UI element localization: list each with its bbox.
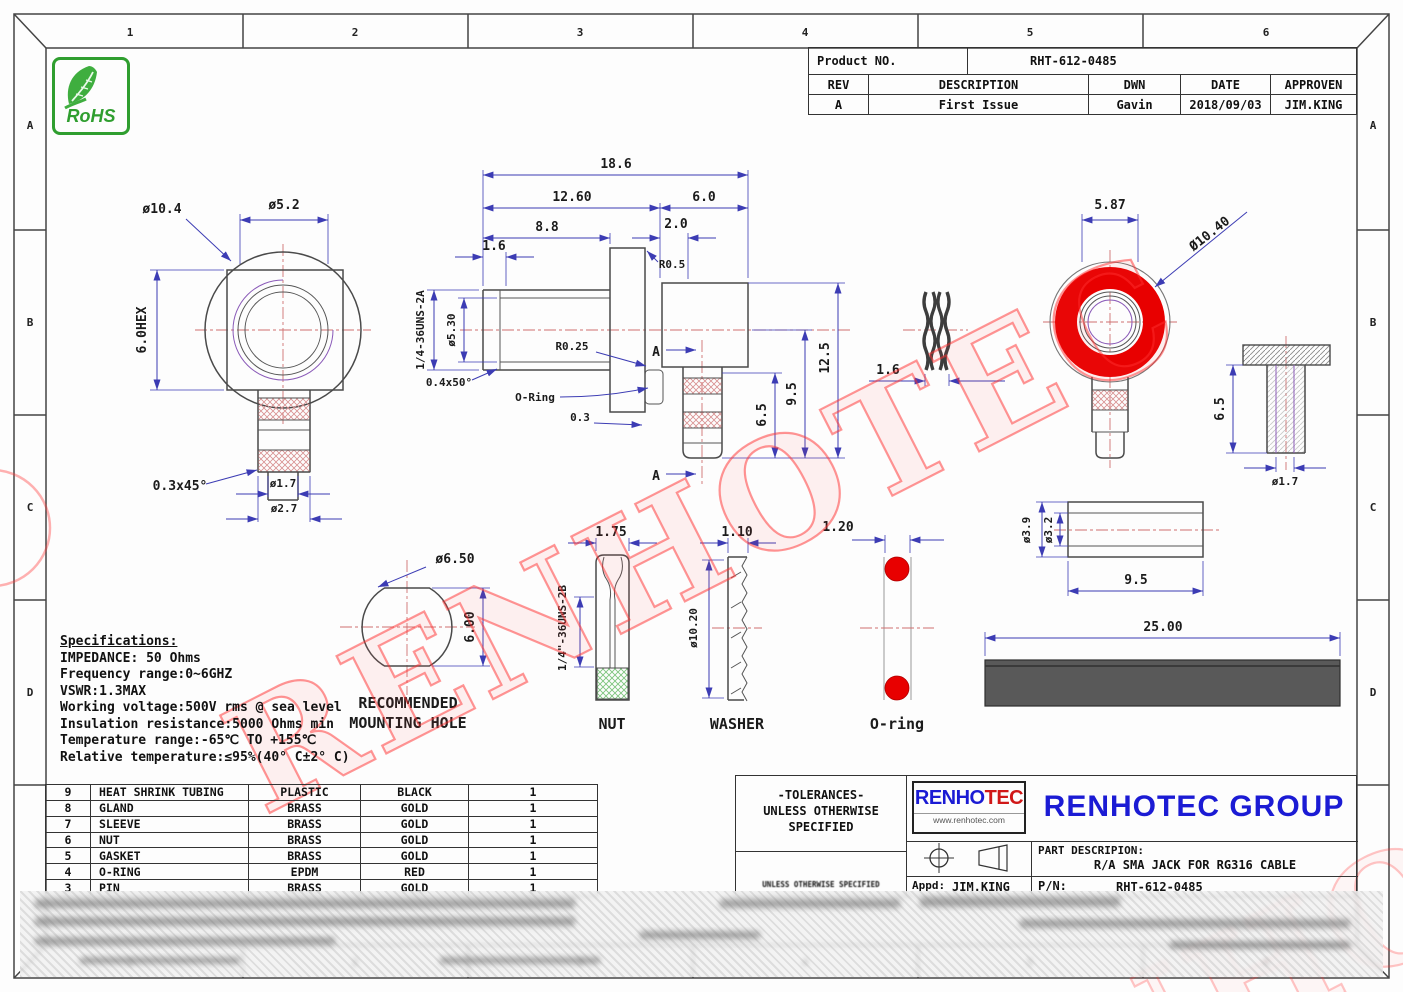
- zone-row: B: [1370, 316, 1377, 329]
- part-qty: 1: [469, 801, 597, 816]
- rev-header: REV: [809, 75, 869, 94]
- zone-col: 1: [127, 26, 134, 39]
- part-qty: 1: [469, 785, 597, 800]
- censored-bottom-strip: [20, 891, 1383, 977]
- revision-product-row: Product NO. RHT-612-0485: [809, 48, 1356, 75]
- dim-label: ø5.2: [268, 198, 299, 213]
- censored-content: [640, 931, 760, 939]
- censored-content: [35, 917, 575, 926]
- dim-label: 0.3x45°: [153, 479, 208, 494]
- logo-text-blue: RENHO: [915, 787, 985, 809]
- zone-row: C: [1370, 501, 1377, 514]
- zone-col: 2: [352, 26, 359, 39]
- part-name: HEAT SHRINK TUBING: [91, 785, 249, 800]
- part-name: GLAND: [91, 801, 249, 816]
- sleeve-view: ø3.9 ø3.2 9.5: [1020, 502, 1222, 596]
- spec-line: Frequency range:0~6GHZ: [60, 667, 390, 684]
- censored-content: [1020, 919, 1350, 928]
- logo-text-red: TEC: [985, 787, 1024, 809]
- dim-label: ø1.7: [1272, 475, 1299, 488]
- part-name: NUT: [91, 833, 249, 848]
- rev-header: DATE: [1181, 75, 1271, 94]
- rev-cell: A: [809, 95, 869, 114]
- spec-line: VSWR:1.3MAX: [60, 684, 390, 701]
- zone-col: 6: [1263, 26, 1270, 39]
- zone-col: 3: [577, 26, 584, 39]
- dim-label: ø5.30: [445, 313, 458, 346]
- oring-section: [885, 676, 909, 700]
- spec-line: Working voltage:500V rms @ sea level: [60, 700, 390, 717]
- view-caption: NUT: [598, 715, 625, 733]
- part-qty: 1: [469, 864, 597, 879]
- revision-header-row: REV DESCRIPTION DWN DATE APPROVEN: [809, 75, 1356, 95]
- part-name: O-RING: [91, 864, 249, 879]
- dim-label: 6.0HEX: [135, 306, 150, 353]
- product-no-label: Product NO.: [809, 48, 968, 74]
- spec-line: Insulation resistance:5000 Ohms min: [60, 717, 390, 734]
- dim-label: 9.5: [1124, 573, 1147, 588]
- section-mark: A: [652, 345, 660, 360]
- censored-content: [35, 899, 575, 908]
- part-material: EPDM: [249, 864, 361, 879]
- zone-row: A: [27, 119, 34, 132]
- logo-url: www.renhotec.com: [914, 813, 1024, 826]
- table-row: 6NUTBRASSGOLD1: [46, 833, 597, 849]
- part-material: BRASS: [249, 801, 361, 816]
- front-view: ø5.2 ø10.4 6.0HEX 0.3x45° ø1.7 ø2.7: [135, 198, 371, 522]
- part-material: BRASS: [249, 817, 361, 832]
- zone-row: D: [1370, 686, 1377, 699]
- rev-cell: Gavin: [1089, 95, 1181, 114]
- zone-row: C: [27, 501, 34, 514]
- specifications-block: Specifications: IMPEDANCE: 50 Ohms Frequ…: [60, 634, 390, 766]
- part-no: 6: [46, 833, 91, 848]
- table-row: 5GASKETBRASSGOLD1: [46, 848, 597, 864]
- table-row: 8GLANDBRASSGOLD1: [46, 801, 597, 817]
- part-no: 8: [46, 801, 91, 816]
- part-finish: GOLD: [361, 848, 469, 863]
- specs-title: Specifications:: [60, 634, 390, 651]
- rohs-label: RoHS: [55, 106, 127, 127]
- censored-content: [1170, 941, 1350, 949]
- part-finish: GOLD: [361, 833, 469, 848]
- zone-col: 5: [1027, 26, 1034, 39]
- censored-content: [80, 957, 240, 964]
- zone-row: B: [27, 316, 34, 329]
- part-material: BRASS: [249, 848, 361, 863]
- part-qty: 1: [469, 817, 597, 832]
- spec-line: Relative temperature:≤95%(40° C±2° C): [60, 750, 390, 767]
- table-row: 7SLEEVEBRASSGOLD1: [46, 817, 597, 833]
- parts-table: 9HEAT SHRINK TUBINGPLASTICBLACK1 8GLANDB…: [45, 784, 598, 897]
- rev-cell: JIM.KING: [1271, 95, 1356, 114]
- dim-label: R0.5: [659, 258, 686, 271]
- dim-label: 1.6: [482, 239, 506, 254]
- view-caption: WASHER: [710, 715, 765, 733]
- rev-header: DWN: [1089, 75, 1181, 94]
- dim-label: 5.87: [1094, 198, 1125, 213]
- rev-cell: 2018/09/03: [1181, 95, 1271, 114]
- censored-content: [440, 957, 600, 964]
- part-material: PLASTIC: [249, 785, 361, 800]
- rev-header: APPROVEN: [1271, 75, 1356, 94]
- oring-section: [885, 557, 909, 581]
- part-no: 4: [46, 864, 91, 879]
- tolerances-note: -TOLERANCES- UNLESS OTHERWISE SPECIFIED: [736, 787, 906, 835]
- dim-label: ø3.2: [1042, 517, 1055, 544]
- censored-content: [720, 899, 900, 908]
- dim-label: 8.8: [535, 220, 559, 235]
- part-no: 9: [46, 785, 91, 800]
- spec-line: IMPEDANCE: 50 Ohms: [60, 651, 390, 668]
- renhotec-logo: RENHOTEC www.renhotec.com: [912, 781, 1026, 834]
- company-name: RENHOTEC GROUP: [1034, 782, 1354, 832]
- zone-row: A: [1370, 119, 1377, 132]
- tubing-body: [985, 660, 1340, 706]
- censored-content: [35, 937, 335, 945]
- projection-symbols: [911, 842, 1026, 874]
- dim-label: 0.4x50°: [426, 376, 472, 389]
- dim-label: 6.5: [1213, 397, 1228, 420]
- tubing-view: 25.00: [985, 620, 1340, 706]
- tolerances-line: UNLESS OTHERWISE: [736, 803, 906, 819]
- tolerances-small-note: UNLESS OTHERWISE SPECIFIED: [736, 880, 906, 889]
- censored-content: [920, 897, 1120, 907]
- dim-label: R0.25: [555, 340, 588, 353]
- dim-label: ø1.7: [270, 477, 297, 490]
- part-no: 7: [46, 817, 91, 832]
- part-finish: RED: [361, 864, 469, 879]
- dim-label: 12.60: [552, 190, 591, 205]
- rohs-logo: RoHS: [52, 57, 130, 135]
- dim-label: O-Ring: [515, 391, 555, 404]
- part-name: GASKET: [91, 848, 249, 863]
- product-no-value: RHT-612-0485: [968, 48, 1356, 74]
- title-block: -TOLERANCES- UNLESS OTHERWISE SPECIFIED …: [735, 775, 1357, 897]
- rev-header: DESCRIPTION: [869, 75, 1089, 94]
- dim-label: ø3.9: [1020, 517, 1033, 544]
- tolerances-line: SPECIFIED: [736, 819, 906, 835]
- dim-label: ø2.7: [271, 502, 298, 515]
- drawing-page: 1 2 3 4 5 6 1 2 3 4 5 6 A B C D A B C D …: [0, 0, 1403, 992]
- dim-label: 2.0: [664, 217, 688, 232]
- dim-label: Ø10.40: [1186, 214, 1233, 255]
- part-finish: GOLD: [361, 801, 469, 816]
- dim-label: ø10.4: [142, 202, 181, 217]
- rev-cell: First Issue: [869, 95, 1089, 114]
- revision-table: Product NO. RHT-612-0485 REV DESCRIPTION…: [808, 47, 1357, 115]
- part-finish: GOLD: [361, 817, 469, 832]
- part-qty: 1: [469, 833, 597, 848]
- dim-label: 18.6: [600, 157, 631, 172]
- part-qty: 1: [469, 848, 597, 863]
- revision-data-row: A First Issue Gavin 2018/09/03 JIM.KING: [809, 95, 1356, 114]
- dim-label: 1/4-36UNS-2A: [414, 290, 427, 370]
- table-row: 4O-RINGEPDMRED1: [46, 864, 597, 880]
- dim-label: 6.0: [692, 190, 716, 205]
- view-caption: O-ring: [870, 715, 924, 733]
- zone-col: 4: [802, 26, 809, 39]
- table-row: 9HEAT SHRINK TUBINGPLASTICBLACK1: [46, 785, 597, 801]
- dim-label: 0.3: [570, 411, 590, 424]
- tolerances-line: -TOLERANCES-: [736, 787, 906, 803]
- pin-view: 6.5 ø1.7: [1213, 336, 1330, 488]
- part-description-value: R/A SMA JACK FOR RG316 CABLE: [1036, 858, 1354, 872]
- part-name: SLEEVE: [91, 817, 249, 832]
- dim-label: 25.00: [1143, 620, 1182, 635]
- part-no: 5: [46, 848, 91, 863]
- part-description-label: PART DESCRIPION:: [1038, 844, 1144, 857]
- watermark-arc: [0, 470, 50, 586]
- part-material: BRASS: [249, 833, 361, 848]
- spec-line: Temperature range:-65℃ TO +155℃: [60, 733, 390, 750]
- zone-row: D: [27, 686, 34, 699]
- part-finish: BLACK: [361, 785, 469, 800]
